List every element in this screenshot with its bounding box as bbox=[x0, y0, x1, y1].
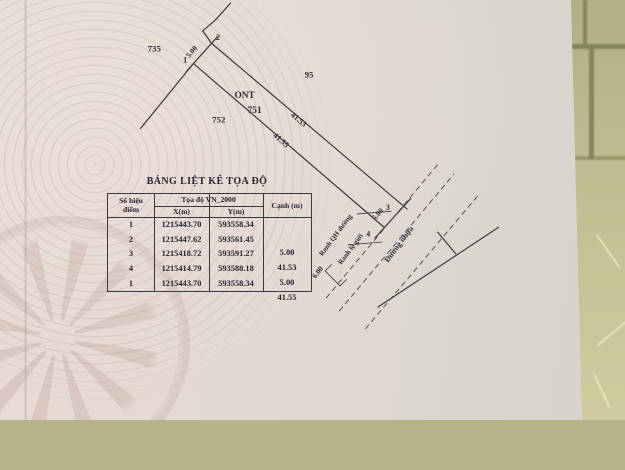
tile-grout-line bbox=[570, 156, 625, 160]
header-x: X(m) bbox=[154, 207, 209, 216]
header-point: Số hiệu điểm bbox=[108, 196, 154, 214]
dim-right-edge: 5.00 bbox=[370, 206, 386, 222]
land-use-label: ONT bbox=[235, 91, 256, 101]
row-boundary-label: Ranh lộ giới bbox=[336, 232, 364, 266]
road-surface-line bbox=[365, 196, 477, 329]
column-y-values: 593558.34 593561.45 593591.27 593588.18 … bbox=[209, 217, 263, 291]
dim-bottom-edge: 41.55 bbox=[271, 131, 290, 150]
parcel-number-label: 751 bbox=[248, 106, 262, 116]
neighbor-parcel-752-label: 752 bbox=[212, 114, 226, 124]
edge-length: 5.00 bbox=[263, 278, 311, 287]
dim-setback: 6.00 bbox=[310, 264, 325, 280]
x-value: 1215443.70 bbox=[154, 220, 209, 229]
x-value: 1215447.62 bbox=[154, 235, 209, 244]
y-value: 593558.34 bbox=[209, 279, 263, 288]
neighbor-parcel-95-label: 95 bbox=[305, 70, 314, 80]
opposite-boundary-stub bbox=[437, 232, 456, 254]
road-far-edge bbox=[377, 227, 498, 307]
point-2-label: 2 bbox=[216, 33, 220, 42]
y-value: 593561.45 bbox=[209, 235, 263, 244]
point-id: 3 bbox=[108, 249, 154, 258]
y-value: 593588.18 bbox=[209, 264, 263, 273]
header-y: Y(m) bbox=[209, 207, 263, 216]
tile-grout-line bbox=[566, 44, 625, 49]
setback-bracket bbox=[325, 264, 346, 285]
tile-vein bbox=[593, 374, 610, 407]
tile-grout-line bbox=[589, 46, 594, 159]
coordinate-table: BẢNG LIỆT KÊ TỌA ĐỘ Số hiệu điểm Tọa độ … bbox=[105, 176, 311, 187]
point-id: 2 bbox=[108, 235, 154, 244]
point-id: 1 bbox=[108, 279, 154, 288]
y-value: 593591.27 bbox=[209, 249, 263, 258]
tile-vein bbox=[596, 234, 621, 268]
edge-length: 41.55 bbox=[263, 293, 311, 302]
table-title: BẢNG LIỆT KÊ TỌA ĐỘ bbox=[125, 176, 289, 187]
x-value: 1215414.79 bbox=[154, 264, 209, 273]
x-value: 1215418.72 bbox=[154, 249, 209, 258]
document-paper: 735 95 ONT 751 752 2 1 3 4 5.00 41.53 41… bbox=[0, 0, 584, 420]
point-4-label: 4 bbox=[366, 229, 370, 238]
photo-of-land-document: 735 95 ONT 751 752 2 1 3 4 5.00 41.53 41… bbox=[0, 0, 625, 420]
column-point-ids: 1 2 3 4 1 bbox=[108, 217, 154, 291]
point-3-label: 3 bbox=[386, 203, 390, 212]
table-grid: Số hiệu điểm Tọa độ VN_2000 X(m) Y(m) Cạ… bbox=[107, 193, 312, 292]
edge-length: 5.00 bbox=[263, 248, 311, 257]
dim-top-edge: 41.53 bbox=[289, 110, 308, 128]
point-id: 4 bbox=[108, 264, 154, 273]
neighbor-parcel-735-label: 735 bbox=[148, 43, 162, 53]
header-point-line2: điểm bbox=[123, 205, 139, 214]
x-value: 1215443.70 bbox=[154, 279, 209, 288]
column-x-values: 1215443.70 1215447.62 1215418.72 1215414… bbox=[154, 217, 209, 291]
edge-length: 41.53 bbox=[263, 263, 311, 272]
tile-grout-line bbox=[583, 0, 587, 46]
header-edge: Cạnh (m) bbox=[263, 201, 311, 210]
road-surface-label: Đường nhựa bbox=[382, 224, 415, 264]
tile-vein bbox=[597, 315, 625, 346]
neighbor-boundary-left bbox=[140, 64, 193, 129]
y-value: 593558.34 bbox=[209, 220, 263, 229]
point-id: 1 bbox=[108, 220, 154, 229]
header-coord-system: Tọa độ VN_2000 bbox=[154, 195, 263, 204]
header-point-line1: Số hiệu bbox=[119, 196, 143, 205]
